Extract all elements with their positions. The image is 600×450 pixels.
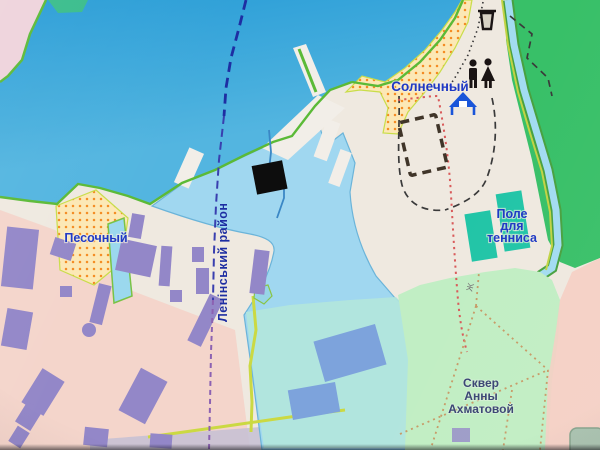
label-tennis-line3: тенниса — [487, 231, 538, 245]
label-pesochny: Песочный — [64, 231, 127, 245]
building — [570, 428, 600, 450]
building — [1, 226, 39, 289]
building — [192, 247, 204, 262]
building — [60, 286, 72, 297]
building-round — [82, 323, 96, 337]
map-canvas[interactable]: Солнечный Песочный Поле для тенниса Скве… — [0, 0, 600, 450]
building — [170, 290, 182, 302]
label-district-boundary: Ленінський район — [216, 203, 230, 323]
building — [452, 428, 470, 442]
label-solnechny: Солнечный — [391, 79, 468, 94]
map-photo: Солнечный Песочный Поле для тенниса Скве… — [0, 0, 600, 450]
selected-building-marker[interactable] — [252, 160, 288, 194]
label-skver-line2: Анны — [464, 389, 497, 403]
label-skver-line3: Ахматовой — [448, 402, 514, 416]
building — [150, 433, 173, 449]
label-skver-line1: Сквер — [463, 376, 499, 390]
building — [83, 427, 109, 447]
building — [196, 268, 209, 294]
